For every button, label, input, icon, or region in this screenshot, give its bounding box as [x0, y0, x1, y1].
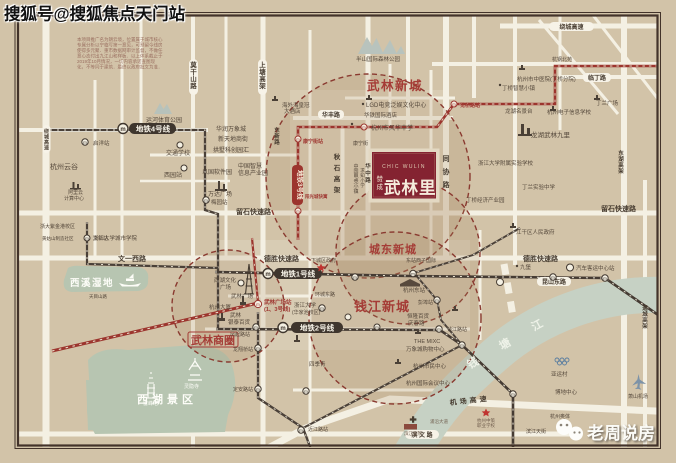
svg-text:以国软件园: 以国软件园: [202, 168, 232, 176]
svg-text:职业学校: 职业学校: [477, 422, 495, 429]
svg-text:阿里云: 阿里云: [68, 189, 83, 196]
svg-text:九堡: 九堡: [520, 263, 532, 271]
svg-text:m: m: [256, 387, 260, 392]
svg-text:m: m: [411, 272, 415, 277]
svg-text:地铁1号线: 地铁1号线: [281, 269, 316, 279]
svg-text:海外海皇冠: 海外海皇冠: [282, 101, 310, 109]
svg-text:绕城高速: 绕城高速: [44, 128, 49, 152]
svg-text:东湖高架: 东湖高架: [617, 149, 624, 175]
svg-text:运河体育公园: 运河体育公园: [146, 116, 182, 124]
svg-text:m: m: [437, 327, 441, 332]
svg-text:滨江天街: 滨江天街: [526, 428, 546, 435]
svg-text:江干区人民政府: 江干区人民政府: [516, 228, 555, 236]
svg-text:成: 成: [377, 182, 384, 191]
svg-text:钱江新城: 钱江新城: [354, 299, 410, 314]
svg-text:赞: 赞: [377, 174, 384, 183]
svg-text:博地中心: 博地中心: [555, 388, 578, 396]
svg-text:m: m: [85, 236, 89, 241]
svg-text:丁桥经济产业园: 丁桥经济产业园: [466, 196, 505, 204]
svg-text:启洋站: 启洋站: [93, 139, 110, 147]
svg-text:德胜快速路: 德胜快速路: [264, 254, 300, 263]
svg-text:m: m: [296, 137, 300, 142]
svg-text:m: m: [320, 306, 324, 311]
svg-text:华润万象城: 华润万象城: [216, 125, 246, 133]
svg-text:半山国际森林公园: 半山国际森林公园: [356, 55, 401, 63]
svg-text:杭州奥体: 杭州奥体: [550, 413, 570, 420]
svg-text:临丁路: 临丁路: [588, 74, 607, 82]
svg-text:西溪湿地: 西溪湿地: [70, 277, 114, 289]
svg-text:通城高架: 通城高架: [641, 304, 648, 330]
svg-text:m: m: [375, 325, 379, 330]
svg-text:彭埠站: 彭埠站: [418, 299, 433, 306]
svg-text:上塘高架: 上塘高架: [258, 60, 266, 90]
svg-text:中国智慧: 中国智慧: [238, 162, 262, 170]
svg-text:m: m: [299, 428, 303, 433]
svg-text:阳光城快寓: 阳光城快寓: [305, 193, 328, 200]
svg-text:m: m: [256, 346, 260, 351]
svg-text:m: m: [353, 275, 357, 280]
svg-text:亚运村: 亚运村: [551, 370, 568, 378]
svg-text:绕城高速: 绕城高速: [559, 23, 583, 31]
svg-text:信息产业园: 信息产业园: [238, 169, 268, 177]
svg-text:m: m: [435, 298, 439, 303]
svg-text:交通学校: 交通学校: [166, 149, 190, 157]
svg-text:华丰路: 华丰路: [322, 111, 341, 119]
svg-text:m: m: [603, 276, 607, 281]
svg-text:莫干山路: 莫干山路: [190, 60, 197, 90]
svg-text:四季青: 四季青: [309, 360, 326, 368]
svg-text:杭州大厦: 杭州大厦: [209, 303, 232, 311]
svg-text:中国电竞小镇: 中国电竞小镇: [353, 163, 358, 195]
svg-text:定安路站: 定安路站: [233, 386, 253, 393]
svg-text:CHIC WULIN: CHIC WULIN: [382, 164, 426, 170]
svg-text:m: m: [265, 272, 270, 278]
svg-text:丁桥智慧小镇: 丁桥智慧小镇: [502, 84, 536, 92]
svg-text:m: m: [362, 125, 366, 130]
svg-text:(1、3号线): (1、3号线): [264, 305, 290, 313]
svg-text:浙江大学附属实验学校: 浙江大学附属实验学校: [478, 159, 534, 167]
svg-text:THE MIXC: THE MIXC: [414, 339, 440, 345]
svg-text:近江路站: 近江路站: [308, 426, 328, 433]
svg-text:丁兰实验中学: 丁兰实验中学: [522, 183, 556, 191]
svg-text:丁兰广场: 丁兰广场: [596, 99, 619, 107]
svg-text:龙翔桥站: 龙翔桥站: [233, 346, 253, 353]
svg-text:武林新城: 武林新城: [367, 78, 423, 93]
svg-text:m: m: [296, 209, 300, 214]
svg-text:留石快速路: 留石快速路: [601, 204, 637, 213]
svg-text:杭钢北苑: 杭钢北苑: [552, 56, 572, 63]
svg-text:灵隐寺: 灵隐寺: [184, 383, 199, 390]
svg-text:武林里: 武林里: [384, 178, 437, 198]
svg-text:拱墅科创园汇: 拱墅科创园汇: [213, 146, 249, 154]
svg-text:浙江大学: 浙江大学: [294, 301, 317, 309]
svg-text:m: m: [551, 275, 555, 280]
svg-text:(华家池校区): (华家池校区): [292, 309, 321, 316]
svg-text:化，不等同于建筑．最终以政府批文为准．: 化，不等同于建筑．最终以政府批文为准．: [77, 64, 163, 71]
svg-text:武林: 武林: [230, 311, 242, 319]
svg-text:m: m: [256, 302, 260, 307]
svg-text:城东新城: 城东新城: [369, 242, 417, 256]
svg-text:黄姑山制造社区: 黄姑山制造社区: [42, 235, 74, 242]
svg-text:地铁3号线: 地铁3号线: [296, 170, 305, 200]
svg-text:武林商圈: 武林商圈: [191, 333, 235, 347]
svg-text:龙湖名景台: 龙湖名景台: [505, 107, 533, 115]
svg-text:浦沿大道: 浦沿大道: [430, 418, 448, 425]
svg-text:m: m: [83, 140, 87, 145]
svg-text:康宁街站: 康宁街站: [302, 138, 323, 145]
svg-text:华中路: 华中路: [365, 162, 371, 184]
svg-text:m: m: [304, 389, 308, 394]
svg-text:东新路: 东新路: [274, 126, 280, 146]
svg-text:大酒店: 大酒店: [284, 107, 301, 115]
svg-text:武林广场站: 武林广场站: [264, 298, 292, 306]
svg-text:m: m: [254, 325, 258, 330]
svg-text:m: m: [280, 326, 285, 332]
svg-text:LGD电竞泛娱文化中心: LGD电竞泛娱文化中心: [366, 101, 426, 109]
svg-text:下城区政府: 下城区政府: [311, 257, 336, 264]
svg-text:同协路: 同协路: [443, 155, 451, 189]
svg-text:西园站: 西园站: [164, 171, 182, 179]
svg-text:汽车客运中心站: 汽车客运中心站: [576, 264, 615, 272]
svg-text:浙大紫金港校区: 浙大紫金港校区: [40, 223, 75, 230]
svg-text:文一西路: 文一西路: [118, 254, 147, 263]
svg-text:银泰百货: 银泰百货: [228, 318, 251, 326]
svg-text:庆春路: 庆春路: [408, 319, 425, 327]
svg-text:杭州市中医院(丁桥分院): 杭州市中医院(丁桥分院): [517, 75, 576, 83]
svg-text:梅园站: 梅园站: [211, 198, 228, 206]
svg-text:钱江路站: 钱江路站: [447, 326, 467, 333]
svg-text:老周说房: 老周说房: [586, 423, 655, 443]
svg-text:浙江大学城市学院: 浙江大学城市学院: [93, 234, 138, 242]
svg-text:笕桥路站: 笕桥路站: [460, 102, 480, 109]
svg-text:华铁国际酒店: 华铁国际酒店: [364, 111, 398, 119]
svg-text:凤起路站: 凤起路站: [230, 331, 250, 338]
svg-text:地铁4号线: 地铁4号线: [136, 124, 171, 134]
svg-text:留石快速路: 留石快速路: [236, 207, 272, 216]
svg-text:广场: 广场: [220, 283, 232, 291]
svg-text:龙湖武林九里: 龙湖武林九里: [531, 130, 571, 139]
svg-text:恒隆百货: 恒隆百货: [407, 312, 430, 320]
svg-text:康宁街: 康宁街: [353, 140, 368, 147]
svg-text:m: m: [120, 127, 125, 133]
svg-text:西湖文化: 西湖文化: [214, 276, 237, 284]
svg-text:德胜快速路: 德胜快速路: [523, 254, 559, 263]
svg-text:萧山机场: 萧山机场: [628, 393, 648, 400]
svg-text:东站西子国际: 东站西子国际: [406, 257, 436, 264]
svg-text:搜狐号@搜狐焦点天门站: 搜狐号@搜狐焦点天门站: [4, 4, 186, 24]
svg-text:m: m: [511, 392, 515, 397]
svg-text:万达广场: 万达广场: [208, 190, 232, 198]
svg-text:m: m: [204, 198, 208, 203]
svg-text:杭州国际会议中心: 杭州国际会议中心: [406, 379, 451, 387]
svg-text:杭州市风华中学: 杭州市风华中学: [371, 124, 413, 132]
svg-text:计算中心: 计算中心: [64, 195, 84, 202]
svg-text:环城东路: 环城东路: [315, 291, 335, 298]
svg-text:滨江医院: 滨江医院: [404, 430, 422, 437]
svg-text:天目山路: 天目山路: [89, 293, 107, 300]
svg-text:杭州云谷: 杭州云谷: [50, 162, 78, 171]
svg-text:地铁2号线: 地铁2号线: [300, 323, 335, 333]
svg-text:新天地商街: 新天地商街: [218, 135, 248, 143]
svg-text:杭州市民中心: 杭州市民中心: [413, 362, 447, 370]
svg-text:求知小学: 求知小学: [360, 167, 365, 188]
svg-text:万象城购物中心: 万象城购物中心: [406, 345, 445, 353]
svg-text:m: m: [452, 102, 456, 107]
svg-text:雷峰塔: 雷峰塔: [143, 400, 158, 407]
svg-text:杭州东站: 杭州东站: [403, 286, 426, 294]
svg-text:m: m: [460, 343, 464, 348]
